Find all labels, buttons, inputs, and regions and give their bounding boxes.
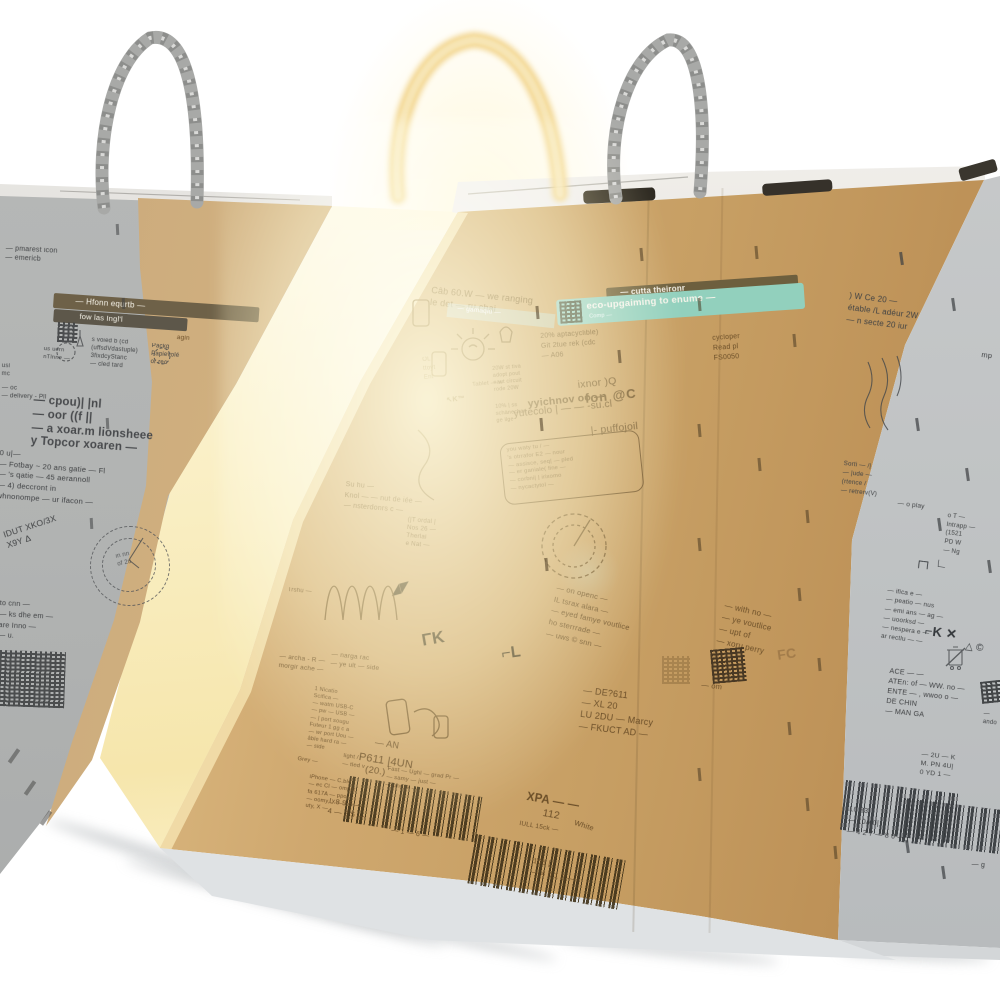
- cable-doodle: [881, 358, 888, 430]
- smartphone-doodle: [413, 300, 429, 326]
- arrow-down-icon: [77, 330, 83, 346]
- lamp-doodle: [462, 338, 484, 360]
- flap-line: [468, 177, 688, 194]
- print-dash: [90, 518, 93, 529]
- doodles-and-handles-layer: [0, 0, 1000, 1000]
- print-dash: [122, 298, 125, 309]
- smartphone-doodle: [434, 716, 448, 738]
- backlit-glow-handle: [397, 40, 560, 196]
- cable-doodle: [418, 430, 434, 500]
- recycle-loop-icon: [57, 343, 75, 361]
- weee-bin-icon: [946, 647, 965, 670]
- cable-doodle: [897, 356, 901, 396]
- flap-line: [60, 191, 300, 200]
- coil-doodle: [325, 586, 397, 620]
- product-photo-canvas: — pmarest icon — emericb — Hfonn equrtb …: [0, 0, 1000, 1000]
- print-dash: [116, 224, 119, 235]
- smartphone-doodle: [432, 352, 446, 376]
- stamp-needle: [129, 538, 143, 568]
- hand-doodle: [414, 709, 439, 736]
- left-twisted-paper-handle: [102, 37, 197, 208]
- stamp-needle: [574, 520, 590, 546]
- print-dash: [106, 418, 109, 429]
- right-twisted-paper-handle: [614, 40, 703, 198]
- smartphone-doodle: [386, 699, 411, 735]
- recycle-loop-icon: [154, 348, 170, 364]
- cable-doodle: [864, 362, 872, 428]
- lamp-doodle-2: [500, 327, 512, 342]
